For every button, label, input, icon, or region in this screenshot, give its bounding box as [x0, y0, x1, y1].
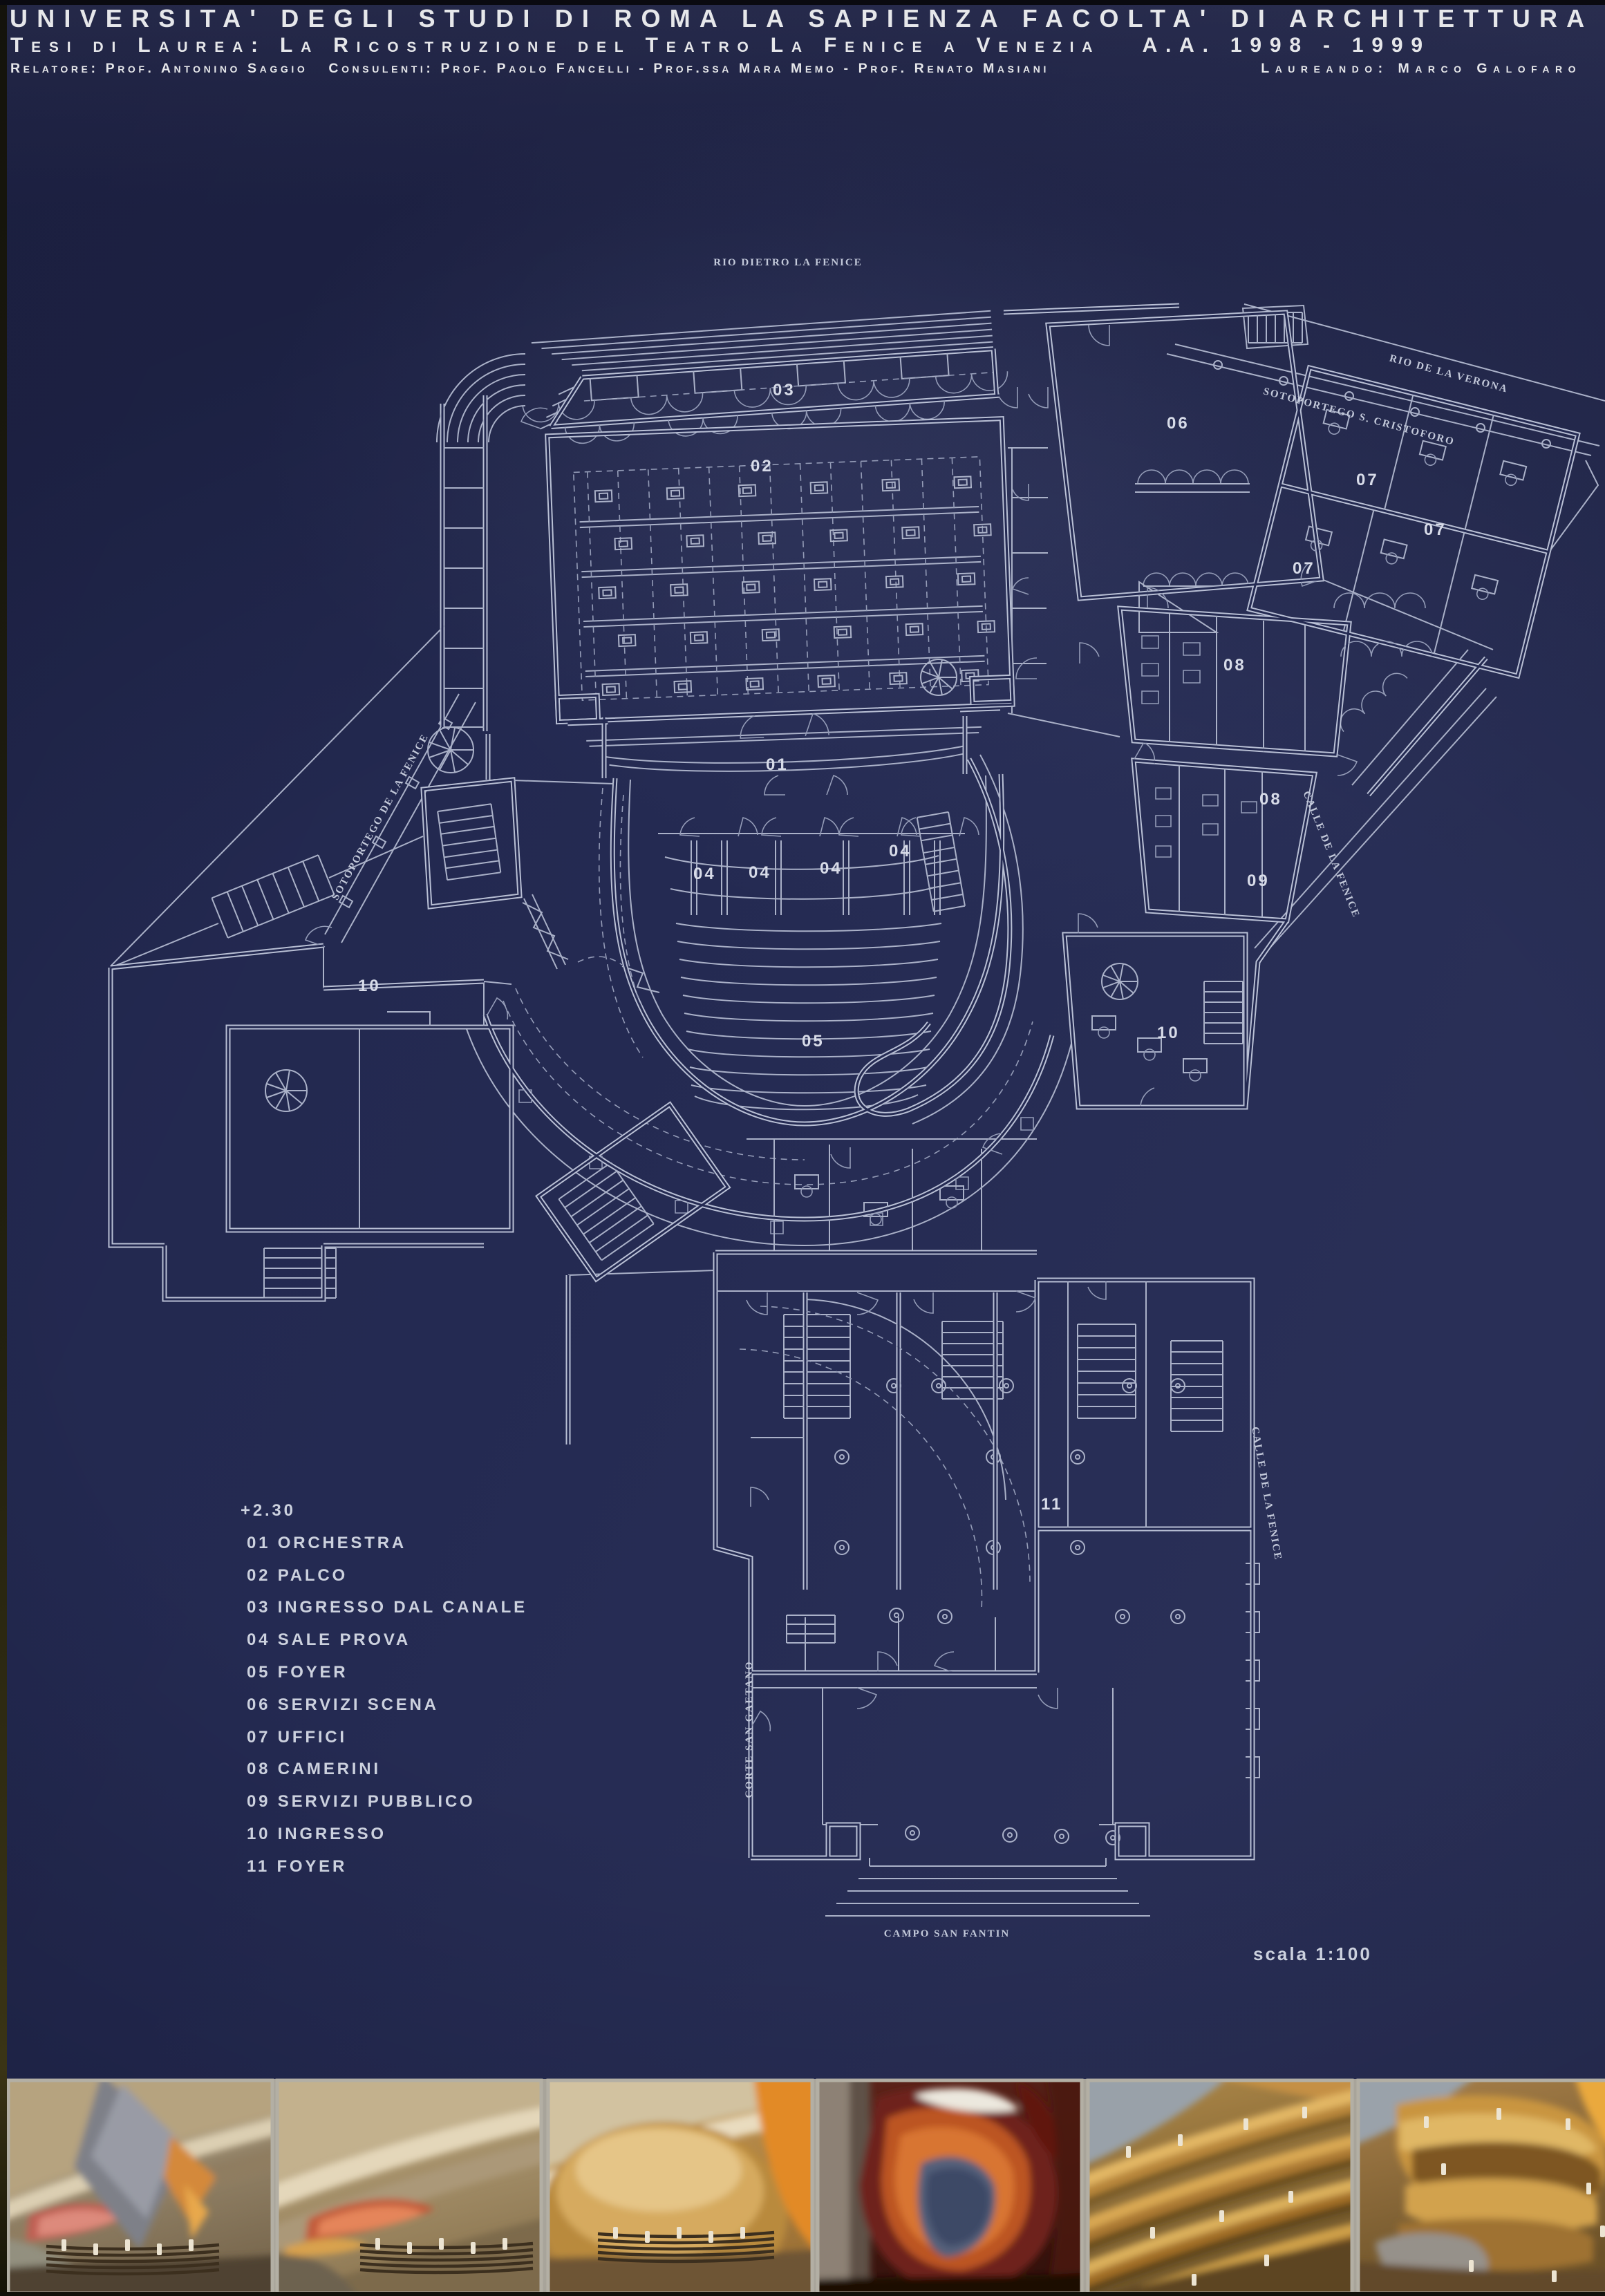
svg-text:06: 06: [1167, 414, 1190, 433]
svg-text:SOTOPORTEGO DE LA FENICE: SOTOPORTEGO DE LA FENICE: [330, 732, 431, 902]
svg-text:CALLE DE LA FENICE: CALLE DE LA FENICE: [1300, 789, 1361, 919]
svg-text:09: 09: [1247, 872, 1270, 890]
svg-text:10: 10: [358, 977, 381, 995]
svg-text:04: 04: [889, 842, 912, 860]
svg-text:CAMPO SAN FANTIN: CAMPO SAN FANTIN: [884, 1928, 1011, 1939]
svg-text:RIO DIETRO LA FENICE: RIO DIETRO LA FENICE: [713, 257, 862, 268]
svg-text:03: 03: [773, 381, 796, 399]
svg-text:11: 11: [1041, 1495, 1062, 1514]
svg-text:04: 04: [749, 863, 771, 882]
svg-text:04: 04: [820, 859, 843, 878]
svg-text:01: 01: [766, 755, 789, 774]
svg-text:07: 07: [1356, 471, 1379, 489]
svg-text:05: 05: [802, 1032, 825, 1051]
svg-text:07: 07: [1424, 520, 1447, 539]
svg-text:04: 04: [693, 865, 716, 883]
svg-text:02: 02: [751, 457, 773, 476]
svg-text:08: 08: [1259, 790, 1282, 809]
svg-text:07: 07: [1293, 559, 1315, 578]
svg-text:08: 08: [1223, 656, 1246, 675]
svg-text:10: 10: [1157, 1024, 1180, 1042]
svg-text:CORTE SAN GAETANO: CORTE SAN GAETANO: [744, 1660, 755, 1798]
